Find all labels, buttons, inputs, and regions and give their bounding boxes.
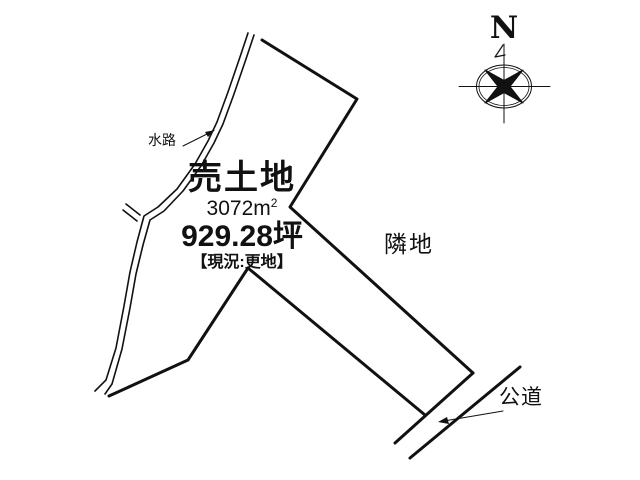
listing-tsubo: 929.28坪 [181, 221, 303, 253]
public-road-label: 公道 [499, 386, 543, 409]
plot-boundary-lower [109, 268, 425, 415]
compass-north-letter: N [490, 11, 518, 45]
diagram-linework [0, 0, 640, 480]
land-plot-diagram: N 売土地 3072m2 929.28坪 【現況:更地】 水路 隣地 公道 [0, 0, 640, 480]
road-leader-arrowhead [438, 417, 449, 424]
listing-status: 【現況:更地】 [181, 254, 303, 272]
neighbor-land-label: 隣地 [384, 232, 434, 257]
listing-area-unit: m [253, 197, 271, 220]
compass-rose [459, 44, 550, 123]
waterway-fork-tick [123, 204, 140, 221]
waterway-label: 水路 [148, 133, 176, 148]
listing-info: 売土地 3072m2 929.28坪 【現況:更地】 [181, 161, 303, 272]
road-leader-line [444, 411, 503, 421]
listing-area: 3072m2 [181, 197, 303, 220]
road-edge-near [395, 373, 473, 443]
listing-title: 売土地 [181, 161, 303, 195]
listing-area-superscript: 2 [271, 196, 278, 210]
listing-area-value: 3072 [207, 197, 254, 220]
